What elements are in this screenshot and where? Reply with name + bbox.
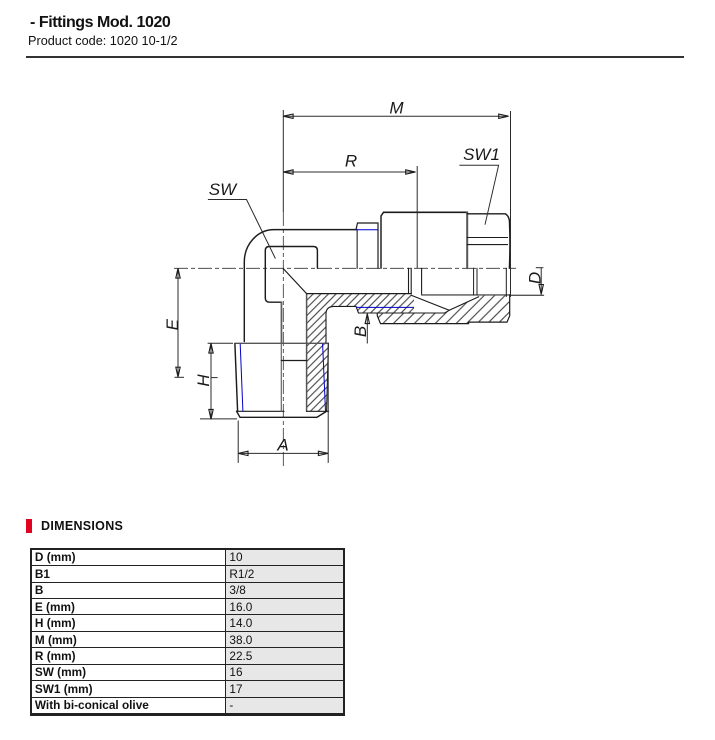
svg-text:D: D	[526, 272, 545, 284]
svg-text:SW: SW	[209, 180, 238, 199]
svg-text:SW1: SW1	[463, 145, 500, 164]
svg-text:B: B	[351, 326, 370, 337]
svg-text:M: M	[389, 99, 404, 118]
svg-text:E: E	[163, 318, 182, 330]
svg-text:R: R	[345, 152, 357, 171]
svg-text:H: H	[194, 374, 213, 387]
svg-text:A: A	[276, 436, 288, 455]
